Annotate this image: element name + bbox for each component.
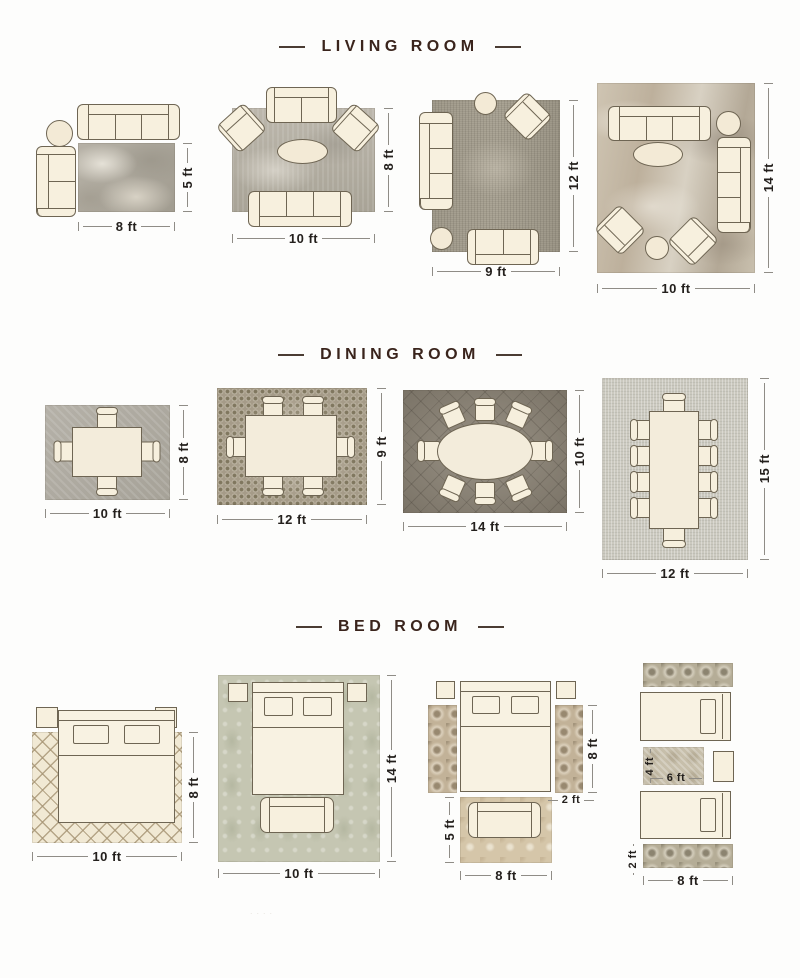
headboard [722, 694, 727, 739]
rug-size-guide: LIVING ROOM DINING ROOM BED ROOM 5 ft 8 … [0, 0, 800, 978]
twin-bed [640, 791, 731, 839]
pillow [700, 798, 716, 832]
between-rug-width-dimension: 6 ft [650, 771, 702, 785]
watermark-dots: .... [250, 906, 276, 916]
pillow [700, 699, 716, 734]
runner-width-dimension: 8 ft [643, 873, 733, 887]
nightstand [713, 751, 734, 782]
bed-room-layout-4: 4 ft 6 ft 2 ft 8 ft [0, 0, 800, 978]
runner-height-dimension: 2 ft [626, 844, 640, 868]
runner-rug [643, 663, 733, 687]
headboard [722, 793, 727, 837]
twin-bed [640, 692, 731, 741]
runner-rug [643, 844, 733, 868]
